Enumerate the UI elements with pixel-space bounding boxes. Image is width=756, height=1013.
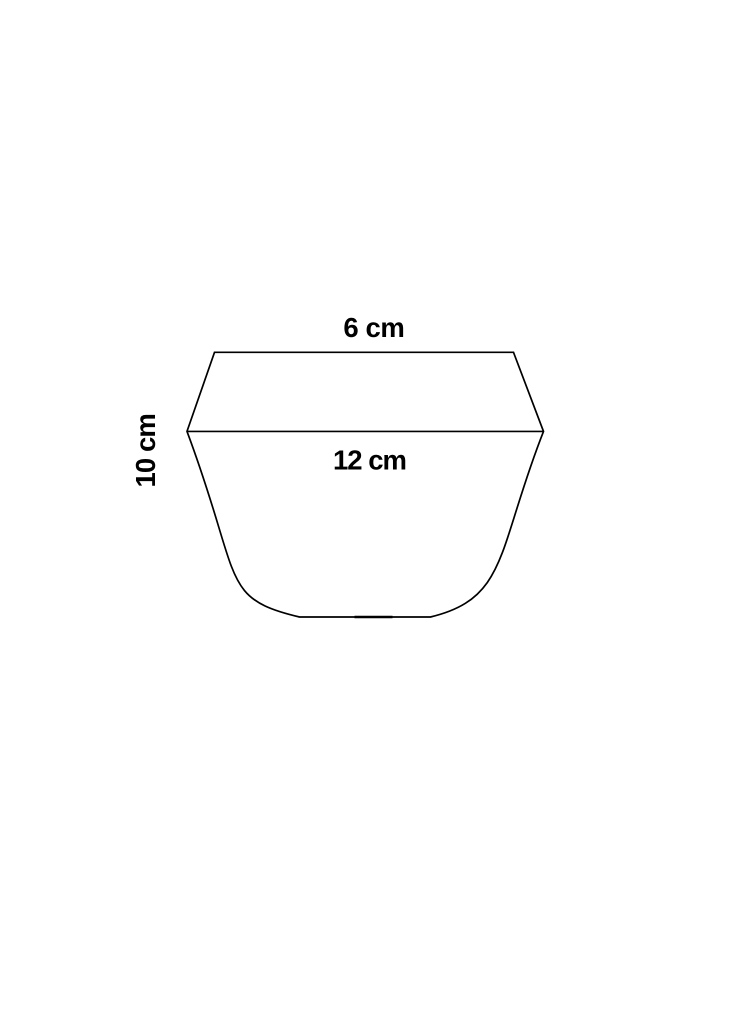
svg-text:6 cm: 6 cm	[343, 312, 404, 343]
svg-text:10 cm: 10 cm	[130, 414, 161, 487]
svg-text:12 cm: 12 cm	[333, 445, 406, 476]
